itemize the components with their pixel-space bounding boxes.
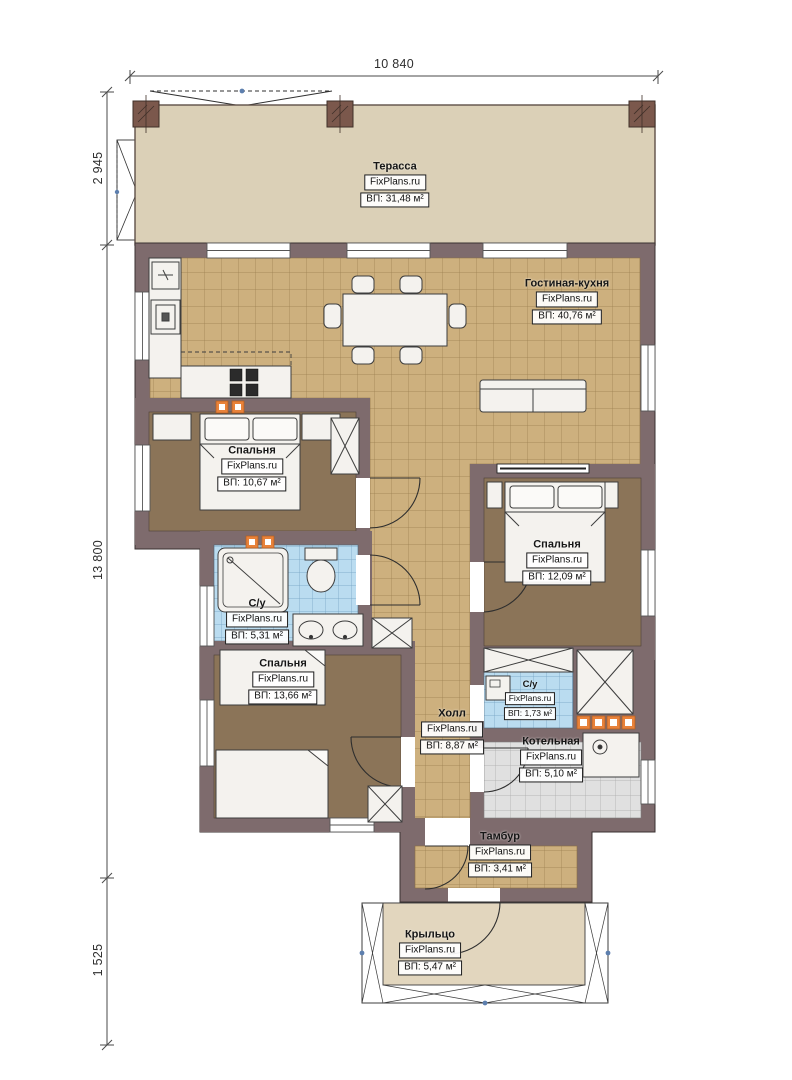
dimension-porch-depth: 1 525 bbox=[91, 944, 105, 977]
bathroom2-washer bbox=[486, 676, 510, 700]
floorplan-drawing bbox=[0, 0, 792, 1080]
floorplan-canvas: 10 840 2 945 13 800 1 525 Терасса FixPla… bbox=[0, 0, 792, 1080]
vestibule-block bbox=[415, 846, 577, 888]
porch-block bbox=[360, 903, 611, 1005]
terrace-canopy bbox=[150, 89, 332, 106]
dimension-top-width: 10 840 bbox=[374, 57, 414, 71]
terrace-area bbox=[133, 95, 655, 245]
terrace-side-stairs bbox=[115, 140, 137, 240]
sofa bbox=[480, 380, 586, 412]
bedroom1-wardrobe bbox=[331, 418, 359, 474]
bedroom2-bed bbox=[487, 482, 618, 582]
dimension-terrace-depth: 2 945 bbox=[91, 152, 105, 185]
boiler-unit bbox=[583, 733, 639, 777]
dimension-house-depth: 13 800 bbox=[91, 540, 105, 580]
